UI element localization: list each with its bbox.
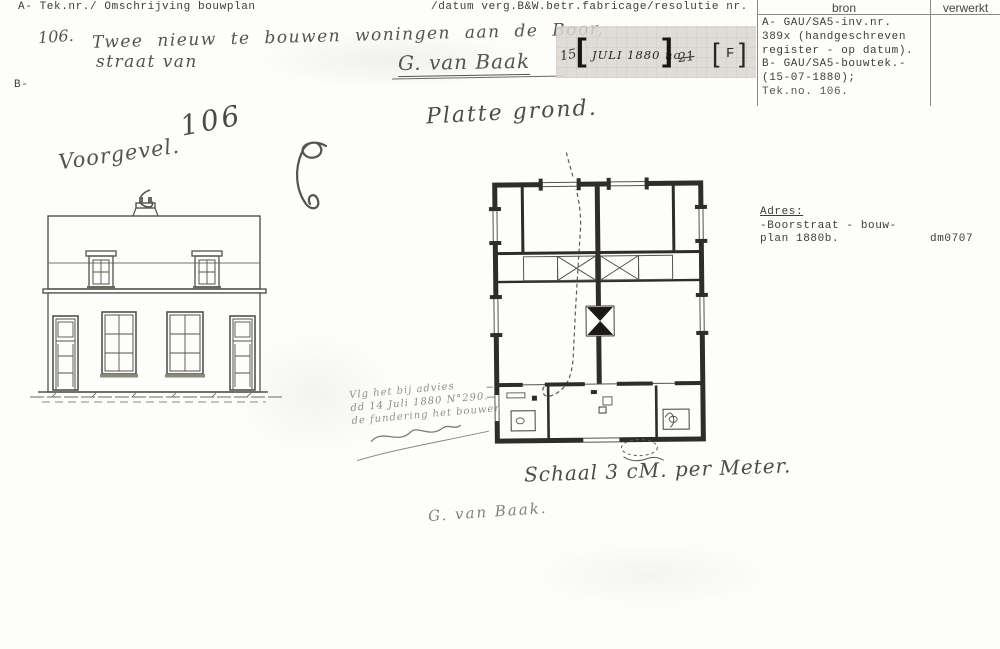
- plattegrond-label: Platte grond.: [425, 96, 598, 130]
- stamp-day: 15: [559, 47, 578, 65]
- smudge: [520, 540, 780, 610]
- bron-line: (15-07-1880);: [762, 72, 913, 85]
- bron-line: A- GAU/SA5-inv.nr.: [762, 17, 913, 31]
- stamp-bracket-open: [: [576, 32, 587, 69]
- archive-card: A- Tek.nr./ Omschrijving bouwplan /datum…: [0, 0, 1000, 649]
- bron-line: 389x (handgeschreven: [762, 31, 913, 45]
- staircase-left: [523, 256, 595, 281]
- roof: [48, 216, 260, 289]
- party-wall: [595, 184, 602, 384]
- door-opening: [583, 435, 619, 445]
- stamp-letter: F: [726, 46, 735, 62]
- interior-wall: [547, 387, 550, 441]
- header-right-label: /datum verg.B&W.betr.fabricage/resolutie…: [431, 1, 748, 13]
- interior-wall: [672, 185, 676, 252]
- ground-line: [30, 392, 282, 402]
- dormer-left: [86, 251, 116, 289]
- verwerkt-column-header: verwerkt: [931, 1, 1000, 15]
- stamp-letter-bracket-close: ]: [739, 38, 747, 69]
- bron-line: Tek.no. 106.: [762, 85, 913, 100]
- interior-wall: [521, 187, 525, 254]
- fixture-right: [663, 409, 689, 429]
- elevation-drawing: [26, 188, 296, 410]
- approval-note: Vlg het bij advies dd 14 Juli 1880 N°290…: [349, 375, 515, 470]
- entry-description-line2: straat van: [96, 52, 198, 72]
- facade-wall: [48, 293, 260, 392]
- window-opening: [607, 177, 649, 189]
- voorgevel-label: Voorgevel.: [57, 134, 181, 175]
- adres-label: Adres:: [760, 206, 897, 220]
- interior-wall: [655, 385, 658, 439]
- bron-line: B- GAU/SA5-bouwtek.-: [762, 58, 913, 72]
- table-border-left: [757, 0, 758, 106]
- signature-bottom: G. van Baak.: [428, 499, 549, 525]
- stamp-letter-bracket-open: [: [712, 38, 720, 69]
- window-opening: [489, 207, 501, 245]
- bron-line: register - op datum).: [762, 45, 913, 59]
- staircase-right: [600, 255, 672, 280]
- table-border-middle: [930, 0, 931, 106]
- entry-number: 106.: [37, 26, 74, 47]
- window-opening: [539, 178, 581, 190]
- sheet-number: 106: [177, 98, 245, 142]
- dormer-right: [192, 251, 222, 289]
- stamp-bracket-close: ]: [662, 32, 673, 69]
- header-left-label: A- Tek.nr./ Omschrijving bouwplan: [18, 1, 256, 13]
- adres-line: -Boorstraat - bouw-: [760, 220, 897, 234]
- adres-line: plan 1880b.: [760, 233, 897, 247]
- window-opening: [696, 293, 708, 335]
- window-opening: [490, 295, 502, 337]
- archive-code: dm0707: [930, 233, 973, 245]
- flourish-doodle: [290, 138, 336, 222]
- fixture-center: [591, 390, 612, 413]
- chimney-flue: [586, 306, 614, 336]
- bron-column-content: A- GAU/SA5-inv.nr. 389x (handgeschreven …: [762, 17, 913, 100]
- flourish-path: [297, 143, 326, 209]
- stamp-number: 21: [677, 49, 695, 66]
- architect-name: G. van Baak: [398, 49, 531, 77]
- adres-block: Adres: -Boorstraat - bouw- plan 1880b.: [760, 206, 897, 247]
- window-opening: [695, 205, 707, 243]
- margin-b-label: B-: [14, 79, 28, 91]
- entry-description-line1: Twee nieuw te bouwen woningen aan de Boo…: [92, 19, 605, 52]
- floorplan-drawing: [484, 147, 717, 471]
- bron-column-header: bron: [758, 1, 930, 15]
